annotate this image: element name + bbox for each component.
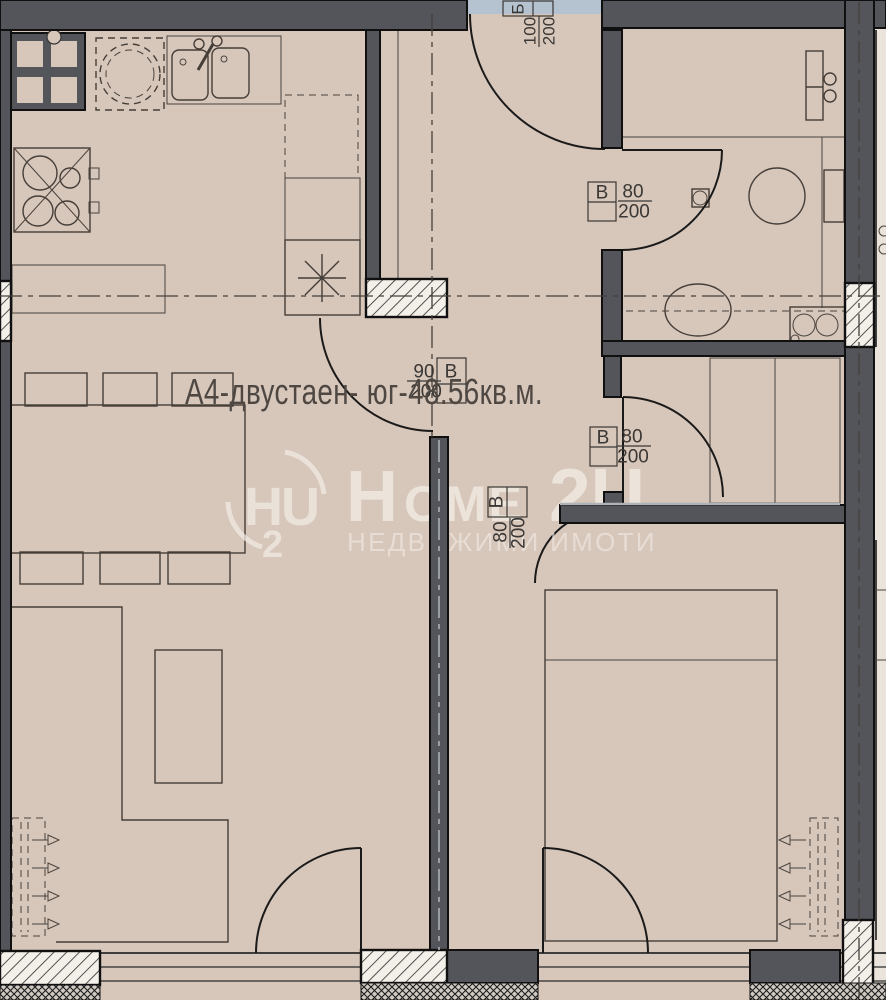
svg-text:100: 100: [521, 17, 540, 45]
wall-section-hatch: [843, 920, 873, 985]
svg-text:В: В: [597, 428, 610, 449]
svg-text:80: 80: [621, 427, 642, 448]
floor-plan-page: HU 2 H OME 2U НЕДВИЖИМИ ИМОТИ: [0, 0, 886, 1000]
corridor-strip: [467, 0, 602, 14]
svg-text:В: В: [487, 496, 508, 509]
svg-text:200: 200: [617, 447, 649, 468]
svg-text:200: 200: [509, 517, 530, 549]
kitchen-window-grid-icon: [10, 30, 85, 110]
wall-section-hatch: [366, 279, 447, 317]
svg-text:80: 80: [622, 182, 643, 203]
svg-text:Б: Б: [509, 3, 528, 14]
wall-section-hatch: [0, 281, 11, 341]
watermark-logo-number: 2: [262, 524, 283, 566]
apartment-title: А4-двустаен- юг-48.56кв.м.: [185, 371, 543, 412]
balcony-edge-hatch: [361, 983, 538, 1000]
floor-plan: HU 2 H OME 2U НЕДВИЖИМИ ИМОТИ: [0, 0, 886, 1000]
wall-section-hatch: [0, 951, 100, 985]
watermark-brand-h: H: [346, 457, 398, 537]
svg-text:200: 200: [540, 17, 559, 45]
svg-text:200: 200: [618, 202, 650, 223]
balcony-edge-hatch: [0, 985, 100, 1000]
balcony-edge-hatch: [750, 983, 886, 1000]
wall-section-hatch: [361, 950, 447, 983]
svg-text:В: В: [596, 183, 609, 204]
